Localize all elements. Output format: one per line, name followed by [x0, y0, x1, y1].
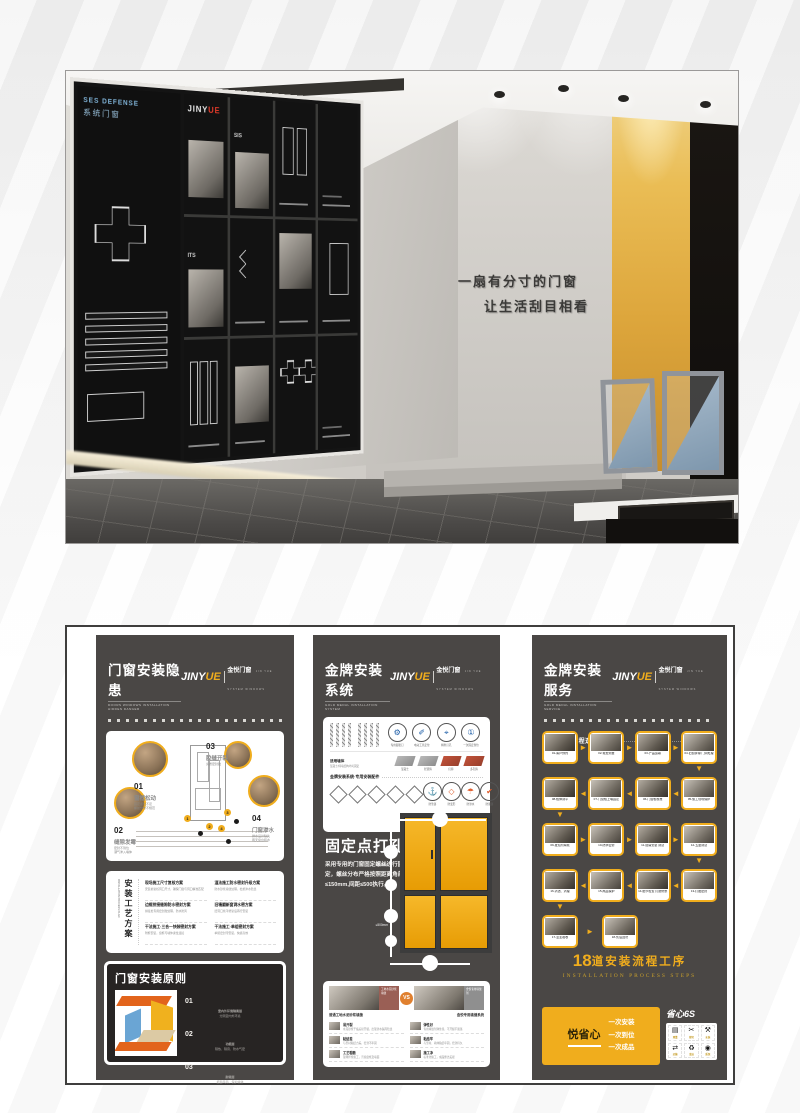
flow-step: 15-成品保护 [588, 869, 624, 902]
pain-points-diagram: 01窗框松动 固定点位不足 螺丝分布不规范 02缝隙发霉 密封不到位 潮气渗入墙… [106, 731, 284, 861]
cross-inner [300, 361, 316, 382]
brand-logo-cn-block: 金悦门窗 JIN YUE SYSTEM WINDOWS [227, 659, 282, 695]
window-corner-sample [600, 378, 657, 474]
wall-slogan: 一扇有分寸的门窗 让生活刮目相看 [458, 271, 628, 315]
dotted-divider [544, 719, 715, 722]
board-caption-line [279, 321, 308, 323]
step-photo [545, 780, 575, 797]
fixing-point [384, 909, 398, 923]
six-s-cell: ◉质保 [701, 1043, 715, 1059]
window-pane [440, 817, 488, 891]
panel-divider [330, 751, 483, 752]
step-photo [545, 826, 575, 843]
brand-name-cn: 金悦门窗 [227, 668, 251, 674]
anti-fall-icon: ⚓ [423, 782, 442, 801]
arrow-right-icon: ► [586, 927, 594, 936]
vs-right-column: 弹性好专用填缝剂弹性佳，不开裂不脱落 粘结牢与型材、墙体粘结牢固，密封持久 施工… [410, 1020, 485, 1062]
diagram-dot [198, 831, 203, 836]
step-label: 03-产品运输 [638, 752, 668, 761]
vs-item: 工艺粗糙现场拌浆施工，污染窗框及墙面 [329, 1048, 404, 1062]
pain-photo-callout [132, 741, 168, 777]
cross-inner [96, 208, 144, 260]
icon-label: 电动工具定位 [410, 743, 434, 747]
pain-item-03: 03胶缝开裂 劣质密封胶 [206, 735, 228, 767]
board-photo [235, 152, 269, 209]
board-cell [230, 338, 272, 457]
sample-glass [667, 376, 719, 470]
vs-item: 施工净标准化施工，成品整洁美观 [410, 1048, 485, 1062]
poster2-title: 金牌安装系统 [325, 659, 390, 699]
vs-right-tag: 金悦专用填缝剂 [464, 986, 484, 1010]
walls-tag: 适用墙体 混凝土/砖墙结构均可固定 [330, 759, 359, 768]
arrow-left-icon: ◄ [579, 881, 587, 890]
pain-photo-callout [224, 741, 252, 769]
step-photo [638, 780, 668, 797]
arrow-down-icon: ▼ [556, 902, 564, 911]
steps-count: 18 [573, 951, 592, 970]
wall-material-chips: 混凝土 轻质砖 红砖 多孔砖 [396, 756, 483, 771]
board-cell [275, 336, 316, 453]
principle-desc: 隔热、隔音、防水气密 [185, 1047, 275, 1051]
vs-left-photo: 工地水泥砂浆填缝 [329, 986, 399, 1010]
concrete-icon [394, 756, 415, 766]
step-label: 05-施工现场保护 [684, 798, 714, 807]
board-caption-line [235, 441, 265, 445]
brand-logo: JINYUE 金悦门窗 JIN YUE SYSTEM WINDOWS [390, 659, 488, 695]
poster3-title: 金牌安装服务 [544, 659, 612, 699]
flow-gap: ▼ [542, 856, 717, 869]
poster1-title-block: 门窗安装隐患 DOORS WINDOWS INSTALLATION HIDDEN… [108, 659, 181, 711]
arrow-right-icon: ► [672, 743, 680, 752]
principle-item: 03耐候层 抵御风雨、保护墙体 [185, 1056, 275, 1084]
step-label: 01-客户预约 [545, 752, 575, 761]
board-caption-line [322, 434, 349, 438]
showroom-render: SES DEFENSE 系统门窗 JINYUE SIS [65, 70, 739, 544]
window-pane [404, 895, 436, 949]
system-icon-block: ⌖精准打孔 [434, 723, 458, 747]
six-s-cell: ✂裁切 [684, 1025, 698, 1041]
logo-divider [224, 671, 225, 683]
principle-list: 01室内外环境隔离层 分隔室内外环境 02功能层 隔热、隔音、防水气密 03耐候… [185, 990, 275, 1089]
poster3-subtitle: GOLD MEDAL INSTALLATION SERVICE [544, 701, 612, 711]
board-cell [318, 104, 357, 218]
anchor-icon: ⚙ [388, 723, 407, 742]
plan-item: 湿法施工防水密封升级方案防水砂浆塞缝处理，杜绝渗水隐患 [215, 879, 277, 901]
arrow-down-icon: ▼ [695, 856, 703, 865]
target-icon: ⌖ [437, 723, 456, 742]
cross-outline-graphic [298, 359, 316, 383]
vs-item-photo [329, 1036, 340, 1044]
flow-step: 03-产品运输 [635, 731, 671, 764]
system-icon-block: ①一次固定到位 [459, 723, 483, 747]
pain-detail: 螺丝分布不规范 [134, 807, 156, 811]
poster1-title: 门窗安装隐患 [108, 659, 181, 699]
step-photo [638, 826, 668, 843]
step-label: 07-门窗框上墙固定 [591, 798, 621, 807]
step-photo [638, 734, 668, 751]
diagram-dot [226, 839, 231, 844]
walls-row: 适用墙体 混凝土/砖墙结构均可固定 混凝土 轻质砖 红砖 多孔砖 [330, 756, 483, 771]
step-photo [545, 872, 575, 889]
board-poster-grid: JINYUE SIS ITS [184, 94, 358, 460]
iso-shape [115, 1042, 172, 1051]
six-s-cell: ⚒安装 [701, 1025, 715, 1041]
promise-section: 悦省心 一次安装 一次到位 一次成品 省心6S ▤测量 ✂裁切 ⚒安装 ⇄运输 … [542, 1007, 717, 1065]
board-logo: JINYUE [188, 104, 221, 116]
plan-title: 安装工艺方案 [124, 879, 133, 939]
plan-item: 现场施工尺寸复核方案安装前复核洞口尺寸，确保门窗与洞口精准匹配 [145, 879, 207, 901]
pain-item-02: 02缝隙发霉 密封不到位 潮气渗入墙体 [114, 819, 136, 855]
board-shape [297, 128, 307, 176]
red-brick-icon [440, 756, 461, 766]
board-shape [329, 243, 348, 294]
step-label: 09-发泡剂填充 [545, 844, 575, 853]
vs-item-photo [329, 1022, 340, 1030]
icon-label: 防脱落 [480, 802, 499, 806]
vs-item-photo [410, 1036, 421, 1044]
cut-icon: ✂ [685, 1027, 697, 1035]
step-label: 06-门窗框校准 [638, 798, 668, 807]
step-photo [591, 734, 621, 751]
pain-label: 03胶缝开裂 [206, 745, 228, 763]
step-photo [591, 826, 621, 843]
block-icon [417, 756, 438, 766]
arrow-left-icon: ◄ [579, 789, 587, 798]
step-label: 04-旧窗拆除 门洞处理 [684, 752, 714, 761]
flow-step: 11-窗扇安装 调试 [635, 823, 671, 856]
counter-front [606, 519, 738, 543]
anti-deform-icon: ◇ [442, 782, 461, 801]
step-label: 16-清洁、清理 [545, 890, 575, 899]
principle-item: 01室内外环境隔离层 分隔室内外环境 [185, 990, 275, 1018]
step-photo [591, 780, 621, 797]
icon-label: 专用膨胀钉 [385, 743, 409, 747]
showroom-scene: SES DEFENSE 系统门窗 JINYUE SIS [66, 71, 738, 543]
pain-detail: 潮气渗入墙体 [114, 851, 136, 855]
cross-inner [282, 362, 299, 383]
vs-item-photo [410, 1050, 421, 1058]
window-corner-sample [662, 371, 724, 475]
material-chip: 混凝土 [396, 756, 414, 771]
anchor-profile-graphic [358, 723, 379, 747]
flow-step: 09-发泡剂填充 [542, 823, 578, 856]
profile-bars-graphic [85, 312, 167, 378]
icon-label: 一次固定到位 [459, 743, 483, 747]
flow-step: 01-客户预约 [542, 731, 578, 764]
brand-logo-word: JINYUE [181, 671, 221, 683]
principle-heading: 03耐候层 [185, 1065, 275, 1079]
anti-leak-icon: ☂ [461, 782, 480, 801]
vs-item-photo [410, 1022, 421, 1030]
diagram-number-dot: 2 [206, 823, 213, 830]
rect-outline-graphic [87, 391, 144, 422]
install-icon: ⚒ [702, 1027, 714, 1035]
chevron-graphic [241, 248, 250, 280]
section-line [195, 788, 221, 810]
vs-right-photo: 金悦专用填缝剂 [414, 986, 484, 1010]
board-cell [230, 218, 272, 336]
fixing-point [422, 955, 438, 971]
walls-tag-note: 混凝土/砖墙结构均可固定 [330, 764, 359, 768]
flow-row-1: 01-客户预约 ► 02-免费测量 ► 03-产品运输 ► 04-旧窗拆除 门洞… [542, 731, 717, 764]
sealant-photo [414, 986, 464, 1010]
step-label: 14-细节检查 打磨修整 [638, 890, 668, 899]
step-photo [638, 872, 668, 889]
principle-title: 门窗安装原则 [115, 970, 275, 986]
slogan-line2: 让生活刮目相看 [484, 296, 628, 315]
vs-item: 粘结牢与型材、墙体粘结牢固，密封持久 [410, 1034, 485, 1048]
board-caption-line [188, 444, 219, 448]
six-s-cell: ⇄运输 [668, 1043, 682, 1059]
flow-step: 17-业主验收 [542, 915, 578, 948]
board-photo [235, 366, 269, 424]
six-s-cell: ♻清洁 [684, 1043, 698, 1059]
poster-installation-system: 金牌安装系统 GOLD MEDAL INSTALLATION SYSTEM JI… [313, 635, 500, 1080]
board-photo [279, 233, 312, 288]
poster3-header: 金牌安装服务 GOLD MEDAL INSTALLATION SERVICE J… [544, 659, 715, 711]
hollow-brick-icon [463, 756, 484, 766]
vs-left-column: 易开裂水泥砂浆干缩后易开裂，出现渗水漏风隐患 粘结差与型材粘结力差，密封不牢固 … [329, 1020, 404, 1062]
fixing-point [432, 811, 448, 827]
principle-heading: 01室内外环境隔离层 [185, 999, 275, 1013]
poster1-header: 门窗安装隐患 DOORS WINDOWS INSTALLATION HIDDEN… [108, 659, 282, 711]
diagram-number-dot: 1 [184, 815, 191, 822]
board-cell [318, 335, 357, 449]
board-cell [275, 219, 316, 335]
brand-name-cn: 金悦门窗 [436, 668, 460, 674]
step-label: 10-防水密封 [591, 844, 621, 853]
promise-item: 一次成品 [609, 1042, 635, 1054]
step-photo [605, 918, 635, 935]
flow-step: 12-五金调试 [681, 823, 717, 856]
dimension-label: ≤150mm [376, 863, 388, 867]
board-caption-line [322, 320, 349, 322]
step-photo [684, 826, 714, 843]
flow-step: 07-门窗框上墙固定 [588, 777, 624, 810]
vs-photos-row: 工地水泥砂浆填缝 VS 金悦专用填缝剂 [329, 986, 484, 1010]
board-cell: ITS [184, 217, 228, 337]
flow-row-5: 17-业主验收 ► 18-售后回访 [542, 915, 717, 948]
isometric-diagram [115, 990, 177, 1056]
pain-label: 01窗框松动 [134, 785, 156, 803]
board-caption-line [279, 203, 308, 206]
diagram-number-dot: 4 [218, 825, 225, 832]
principle-desc: 抵御风雨、保护墙体 [185, 1080, 275, 1084]
flow-step: 14-细节检查 打磨修整 [635, 869, 671, 902]
vs-right-caption: 金悦专用填缝系统 [412, 1012, 484, 1017]
steps-subtitle-en: INSTALLATION PROCESS STEPS [532, 973, 727, 979]
flow-gap: ▼ [542, 902, 717, 915]
dotted-divider [108, 719, 282, 722]
icon-label: 防变形 [442, 802, 461, 806]
window-handle [431, 850, 433, 859]
board-photo [188, 270, 223, 328]
vs-captions: 普通工地水泥砂浆填缝 金悦专用填缝系统 [329, 1012, 484, 1017]
board-shape [200, 361, 208, 425]
board-cell [318, 220, 357, 333]
board-cell [275, 101, 316, 218]
spotlight-icon [558, 85, 569, 92]
pain-photo-callout [248, 775, 280, 807]
six-s-grid: ▤测量 ✂裁切 ⚒安装 ⇄运输 ♻清洁 ◉质保 [666, 1023, 717, 1060]
inner-section-header: 金牌安装系统·专用安装配件 [330, 774, 483, 780]
material-chip: 红砖 [442, 756, 460, 771]
step-photo [545, 918, 575, 935]
plan-grid: 现场施工尺寸复核方案安装前复核洞口尺寸，确保门窗与洞口精准匹配 湿法施工防水密封… [145, 879, 276, 945]
pain-item-01: 01窗框松动 固定点位不足 螺丝分布不规范 [134, 775, 156, 811]
steps-title: 道安装流程工序 [592, 956, 687, 968]
board-cell: JINYUE [184, 94, 228, 215]
promise-box: 悦省心 一次安装 一次到位 一次成品 [542, 1007, 660, 1065]
icon-label: 防渗水 [461, 802, 480, 806]
cross-outline-graphic [95, 206, 146, 262]
poster3-title-block: 金牌安装服务 GOLD MEDAL INSTALLATION SERVICE [544, 659, 612, 711]
step-label: 17-业主验收 [545, 936, 575, 945]
board-shape [283, 127, 294, 175]
pain-label: 02缝隙发霉 [114, 829, 136, 847]
spotlight-icon [618, 95, 629, 102]
spotlight-icon [700, 101, 711, 108]
arrow-left-icon: ◄ [626, 789, 634, 798]
arrow-down-icon: ▼ [695, 764, 703, 773]
arrow-left-icon: ◄ [626, 881, 634, 890]
six-s-cell: ▤测量 [668, 1025, 682, 1041]
icon-label: 精准打孔 [434, 743, 458, 747]
brand-name-cn: 金悦门窗 [659, 668, 683, 674]
principle-body: 01室内外环境隔离层 分隔室内外环境 02功能层 隔热、隔音、防水气密 03耐候… [115, 990, 275, 1089]
brand-logo-word: JINYUE [390, 671, 430, 683]
step-label: 18-售后回访 [605, 936, 635, 945]
board-cell: SIS [230, 97, 272, 216]
arrow-left-icon: ◄ [672, 789, 680, 798]
inner-section-title: 金牌安装系统·专用安装配件 [330, 774, 379, 780]
measure-icon: ▤ [669, 1027, 681, 1035]
process-plan-panel: 安装工艺方案 INSTALLATION PROCESS PLAN 现场施工尺寸复… [106, 871, 284, 953]
system-icon-block: ☂防渗水 [461, 782, 480, 806]
sample-glass [606, 383, 653, 468]
flow-step: 13-打胶密封 [681, 869, 717, 902]
step-photo [684, 872, 714, 889]
cement-photo [329, 986, 379, 1010]
system-icon-block: ◇防变形 [442, 782, 461, 806]
arrow-left-icon: ◄ [672, 881, 680, 890]
logo-divider [655, 671, 656, 683]
flow-step: 10-防水密封 [588, 823, 624, 856]
material-chip: 轻质砖 [419, 756, 437, 771]
system-icon-block: ⚙专用膨胀钉 [385, 723, 409, 747]
principle-desc: 分隔室内外环境 [185, 1014, 275, 1018]
board-caption-line [235, 322, 265, 324]
board-text: ITS [188, 253, 196, 259]
fitting-row: ⚓防坠落 ◇防变形 ☂防渗水 ✔防脱落 [330, 782, 483, 806]
vs-item-photo [329, 1050, 340, 1058]
flow-step: 08-框体调平 [542, 777, 578, 810]
step-label: 11-窗扇安装 调试 [638, 844, 668, 853]
flow-step: 06-门窗框校准 [635, 777, 671, 810]
vs-columns: 易开裂水泥砂浆干缩后易开裂，出现渗水漏风隐患 粘结差与型材粘结力差，密封不牢固 … [329, 1020, 484, 1062]
board-caption-line [322, 426, 342, 429]
board-left-panel: SES DEFENSE 系统门窗 [78, 86, 181, 469]
brand-logo: JINYUE 金悦门窗 JIN YUE SYSTEM WINDOWS [181, 659, 282, 695]
poster2-header: 金牌安装系统 GOLD MEDAL INSTALLATION SYSTEM JI… [325, 659, 488, 711]
installation-principle-panel: 门窗安装原则 01室内外环境隔离层 分隔室内外环境 02功能层 [104, 961, 286, 1065]
arrow-right-icon: ► [579, 835, 587, 844]
pain-detail: 劣质密封胶 [206, 763, 228, 767]
flow-step: 02-免费测量 [588, 731, 624, 764]
principle-item: 02功能层 隔热、隔音、防水气密 [185, 1023, 275, 1051]
board-tagline: SES DEFENSE 系统门窗 [83, 96, 139, 122]
poster-installation-hazards: 门窗安装隐患 DOORS WINDOWS INSTALLATION HIDDEN… [96, 635, 294, 1080]
spotlight-icon [494, 91, 505, 98]
step-photo [684, 780, 714, 797]
step-label: 08-框体调平 [545, 798, 575, 807]
pain-label: 04门窗渗水 [252, 817, 274, 835]
diagram-dot [234, 819, 239, 824]
board-shape [190, 361, 198, 426]
step-photo [545, 734, 575, 751]
plan-title-en: INSTALLATION PROCESS PLAN [117, 879, 120, 917]
fixing-point [384, 845, 398, 859]
vs-item: 弹性好专用填缝剂弹性佳，不开裂不脱落 [410, 1020, 485, 1034]
poster1-subtitle: DOORS WINDOWS INSTALLATION HIDDEN DANGER [108, 701, 181, 711]
system-icon-block: ✔防脱落 [480, 782, 499, 806]
brand-logo: JINYUE 金悦门窗 JIN YUE SYSTEM WINDOWS [612, 659, 715, 695]
section-rule [382, 776, 483, 778]
flow-gap: ▼ [542, 810, 717, 823]
brand-logo-word: JINYUE [612, 671, 652, 683]
icon-label: 防坠落 [423, 802, 442, 806]
delivery-icon: ⇄ [669, 1045, 681, 1053]
window-pane [440, 895, 488, 949]
anchor-profile-graphic [330, 723, 351, 747]
fixing-point [385, 879, 397, 891]
promise-item: 一次到位 [609, 1030, 635, 1042]
fixing-point [385, 935, 397, 947]
poster-installation-service: 金牌安装服务 GOLD MEDAL INSTALLATION SERVICE J… [532, 635, 727, 1080]
step-photo [684, 734, 714, 751]
system-icon-block: ⚓防坠落 [423, 782, 442, 806]
arrow-right-icon: ► [626, 743, 634, 752]
promise-list: 一次安装 一次到位 一次成品 [609, 1017, 635, 1054]
vs-badge: VS [400, 992, 413, 1005]
pain-detail: 雨天窗台积水 [252, 839, 274, 843]
arrow-right-icon: ► [672, 835, 680, 844]
poster2-subtitle: GOLD MEDAL INSTALLATION SYSTEM [325, 701, 390, 711]
anti-loosen-icon: ✔ [480, 782, 499, 801]
step-label: 12-五金调试 [684, 844, 714, 853]
arrow-right-icon: ► [626, 835, 634, 844]
vs-item: 粘结差与型材粘结力差，密封不牢固 [329, 1034, 404, 1048]
arrow-down-icon: ▼ [556, 810, 564, 819]
brand-logo-cn-block: 金悦门窗 JIN YUE SYSTEM WINDOWS [436, 659, 488, 695]
six-s-title: 省心6S [666, 1007, 717, 1020]
plan-item: 边框拼接缝隙防水密封方案拼接处专用密封胶处理，防水防风 [145, 901, 207, 923]
dimension-label: ≤500mm [376, 923, 388, 927]
slogan-line1: 一扇有分寸的门窗 [458, 271, 628, 290]
exhibition-board: SES DEFENSE 系统门窗 JINYUE SIS [70, 77, 364, 477]
step-label: 13-打胶密封 [684, 890, 714, 899]
steps-heading: 18道安装流程工序 INSTALLATION PROCESS STEPS [532, 951, 727, 979]
window-pane [404, 817, 436, 891]
promise-name: 悦省心 [568, 1026, 601, 1047]
diagram-number-dot: 3 [224, 809, 231, 816]
flow-step: 04-旧窗拆除 门洞处理 [681, 731, 717, 764]
flow-step: 05-施工现场保护 [681, 777, 717, 810]
board-caption-line [322, 205, 349, 208]
board-cell [184, 339, 228, 460]
step-photo [591, 872, 621, 889]
board-caption-line [322, 196, 342, 199]
